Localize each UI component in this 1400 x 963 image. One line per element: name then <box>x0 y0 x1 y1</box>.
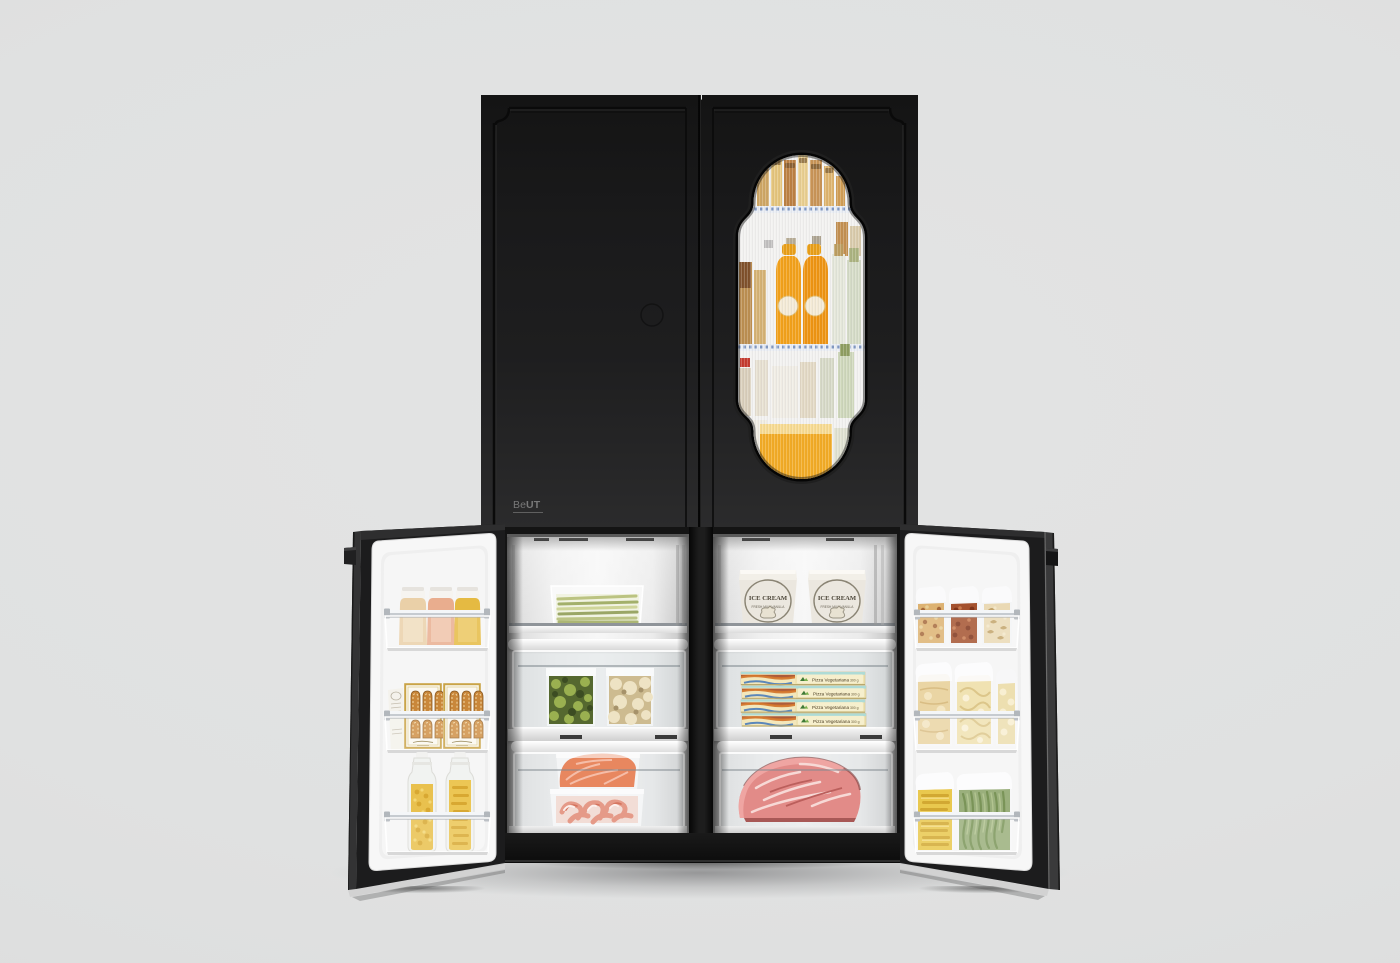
svg-text:ICE CREAM: ICE CREAM <box>749 595 788 602</box>
svg-text:ICE CREAM: ICE CREAM <box>818 595 857 602</box>
